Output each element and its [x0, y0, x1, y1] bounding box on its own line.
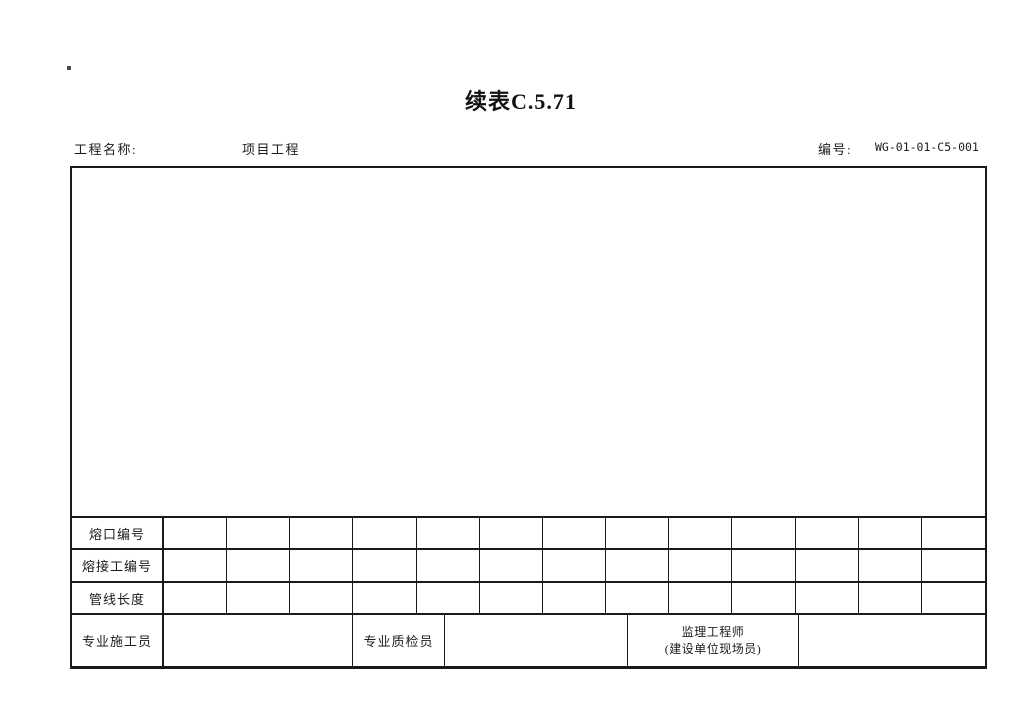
table-cell[interactable] [922, 518, 985, 548]
table-blank-body-area [72, 168, 985, 518]
page-title: 续表C.5.71 [0, 84, 1024, 116]
supervisor-label-line2: (建设单位现场员) [665, 641, 762, 657]
table-cell[interactable] [480, 583, 543, 613]
table-cell[interactable] [480, 550, 543, 581]
table-cell[interactable] [859, 550, 922, 581]
table-cell[interactable] [606, 518, 669, 548]
table-cell[interactable] [606, 583, 669, 613]
row-label: 熔接工编号 [72, 550, 164, 581]
row-label: 管线长度 [72, 583, 164, 613]
table-cell[interactable] [417, 518, 480, 548]
table-cell[interactable] [669, 583, 732, 613]
table-row-1: 熔口编号 [72, 518, 985, 550]
table-cell[interactable] [290, 518, 353, 548]
table-row-2: 熔接工编号 [72, 550, 985, 583]
table-cell[interactable] [290, 550, 353, 581]
constructor-label: 专业施工员 [72, 615, 164, 666]
supervisor-label-line1: 监理工程师 [682, 624, 745, 640]
table-cell[interactable] [480, 518, 543, 548]
table-cell[interactable] [606, 550, 669, 581]
inspector-label: 专业质检员 [353, 615, 445, 666]
constructor-signature-cell[interactable] [164, 615, 353, 666]
project-name-label: 工程名称: [74, 139, 137, 158]
table-cell[interactable] [796, 583, 859, 613]
table-cell[interactable] [732, 550, 795, 581]
table-cell[interactable] [227, 518, 290, 548]
document-page: 续表C.5.71 工程名称: 项目工程 编号: WG-01-01-C5-001 … [0, 0, 1024, 726]
table-cell[interactable] [669, 550, 732, 581]
table-cell[interactable] [796, 518, 859, 548]
table-cell[interactable] [543, 518, 606, 548]
signature-row: 专业施工员 专业质检员 监理工程师 (建设单位现场员) [72, 615, 985, 666]
table-cell[interactable] [669, 518, 732, 548]
inspector-signature-cell[interactable] [445, 615, 628, 666]
corner-period-mark [67, 66, 71, 70]
table-cell[interactable] [290, 583, 353, 613]
table-cell[interactable] [227, 550, 290, 581]
continuation-table: 熔口编号熔接工编号管线长度 专业施工员 专业质检员 监理工程师 (建设单位现场员… [70, 166, 987, 669]
project-name-value: 项目工程 [242, 139, 300, 158]
table-cell[interactable] [353, 518, 416, 548]
table-cell[interactable] [922, 550, 985, 581]
supervisor-label: 监理工程师 (建设单位现场员) [628, 615, 799, 666]
table-cell[interactable] [417, 550, 480, 581]
table-cell[interactable] [732, 518, 795, 548]
table-cell[interactable] [227, 583, 290, 613]
table-cell[interactable] [164, 550, 227, 581]
table-cell[interactable] [922, 583, 985, 613]
table-cell[interactable] [859, 583, 922, 613]
data-rows: 熔口编号熔接工编号管线长度 [72, 518, 985, 615]
table-cell[interactable] [732, 583, 795, 613]
number-value: WG-01-01-C5-001 [875, 140, 979, 154]
table-cell[interactable] [164, 518, 227, 548]
table-cell[interactable] [543, 583, 606, 613]
table-cell[interactable] [353, 583, 416, 613]
number-label: 编号: [818, 139, 852, 158]
table-cell[interactable] [417, 583, 480, 613]
table-row-3: 管线长度 [72, 583, 985, 615]
table-cell[interactable] [859, 518, 922, 548]
table-cell[interactable] [796, 550, 859, 581]
row-label: 熔口编号 [72, 518, 164, 548]
table-cell[interactable] [543, 550, 606, 581]
table-cell[interactable] [164, 583, 227, 613]
supervisor-signature-cell[interactable] [799, 615, 985, 666]
table-cell[interactable] [353, 550, 416, 581]
